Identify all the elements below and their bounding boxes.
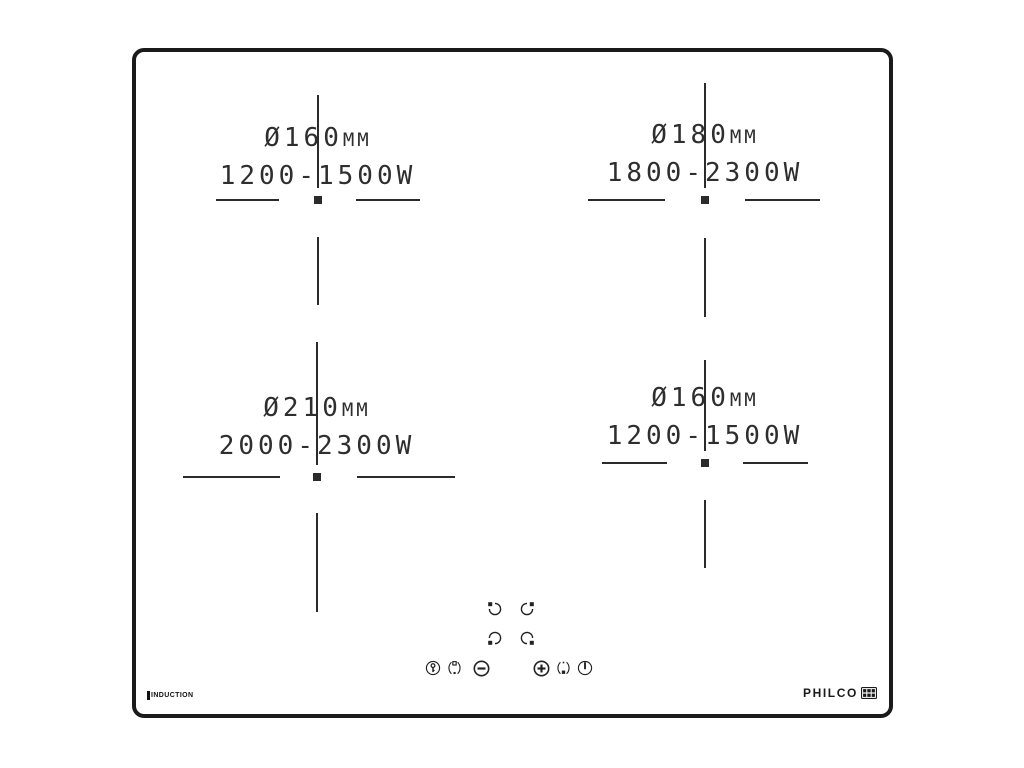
crosshair-vline-bottom bbox=[317, 237, 319, 305]
zone-diameter-unit: MM bbox=[730, 126, 759, 148]
crosshair-vline-bottom bbox=[316, 513, 318, 612]
zone-select-top-left-icon bbox=[487, 601, 503, 617]
crosshair-hline-right bbox=[356, 199, 420, 201]
induction-label: INDUCTION bbox=[147, 691, 194, 700]
zone-diameter-unit: MM bbox=[342, 399, 371, 421]
power-icon bbox=[577, 660, 593, 676]
philco-badge-icon bbox=[861, 687, 877, 699]
zone-select-top-right-icon bbox=[519, 601, 535, 617]
zone-diameter-value: Ø160 bbox=[264, 123, 343, 153]
zone-diameter-value: Ø180 bbox=[651, 120, 730, 150]
crosshair-vline-bottom bbox=[704, 238, 706, 317]
crosshair-hline-right bbox=[745, 199, 820, 201]
crosshair-hline-left bbox=[588, 199, 665, 201]
crosshair-hline-left bbox=[183, 476, 280, 478]
plus-icon bbox=[533, 660, 550, 677]
crosshair-vline-top bbox=[317, 95, 319, 188]
zone-diameter-unit: MM bbox=[343, 129, 372, 151]
zone-diameter-value: Ø160 bbox=[651, 383, 730, 413]
minus-icon bbox=[473, 660, 490, 677]
crosshair-center-mark bbox=[314, 196, 322, 204]
crosshair-vline-top bbox=[316, 342, 318, 465]
crosshair-center-mark bbox=[313, 473, 321, 481]
crosshair-hline-right bbox=[743, 462, 808, 464]
philco-logo: PHILCO bbox=[803, 686, 877, 700]
crosshair-center-mark bbox=[701, 196, 709, 204]
crosshair-vline-top bbox=[704, 83, 706, 188]
zone-diameter-unit: MM bbox=[730, 389, 759, 411]
crosshair-vline-bottom bbox=[704, 500, 706, 568]
zone-diameter-value: Ø210 bbox=[263, 393, 342, 423]
crosshair-hline-right bbox=[357, 476, 455, 478]
zone-select-bottom-right-icon bbox=[519, 630, 535, 646]
timer-right-icon bbox=[556, 660, 571, 676]
crosshair-vline-top bbox=[704, 360, 706, 451]
zone-select-bottom-left-icon bbox=[487, 630, 503, 646]
timer-left-icon bbox=[447, 660, 462, 676]
crosshair-center-mark bbox=[701, 459, 709, 467]
diagram-canvas: Ø160MM 1200-1500W Ø180MM 1800-2300W Ø210… bbox=[0, 0, 1024, 768]
child-lock-icon bbox=[425, 660, 441, 676]
crosshair-hline-left bbox=[602, 462, 667, 464]
philco-logo-text: PHILCO bbox=[803, 686, 858, 700]
crosshair-hline-left bbox=[216, 199, 279, 201]
